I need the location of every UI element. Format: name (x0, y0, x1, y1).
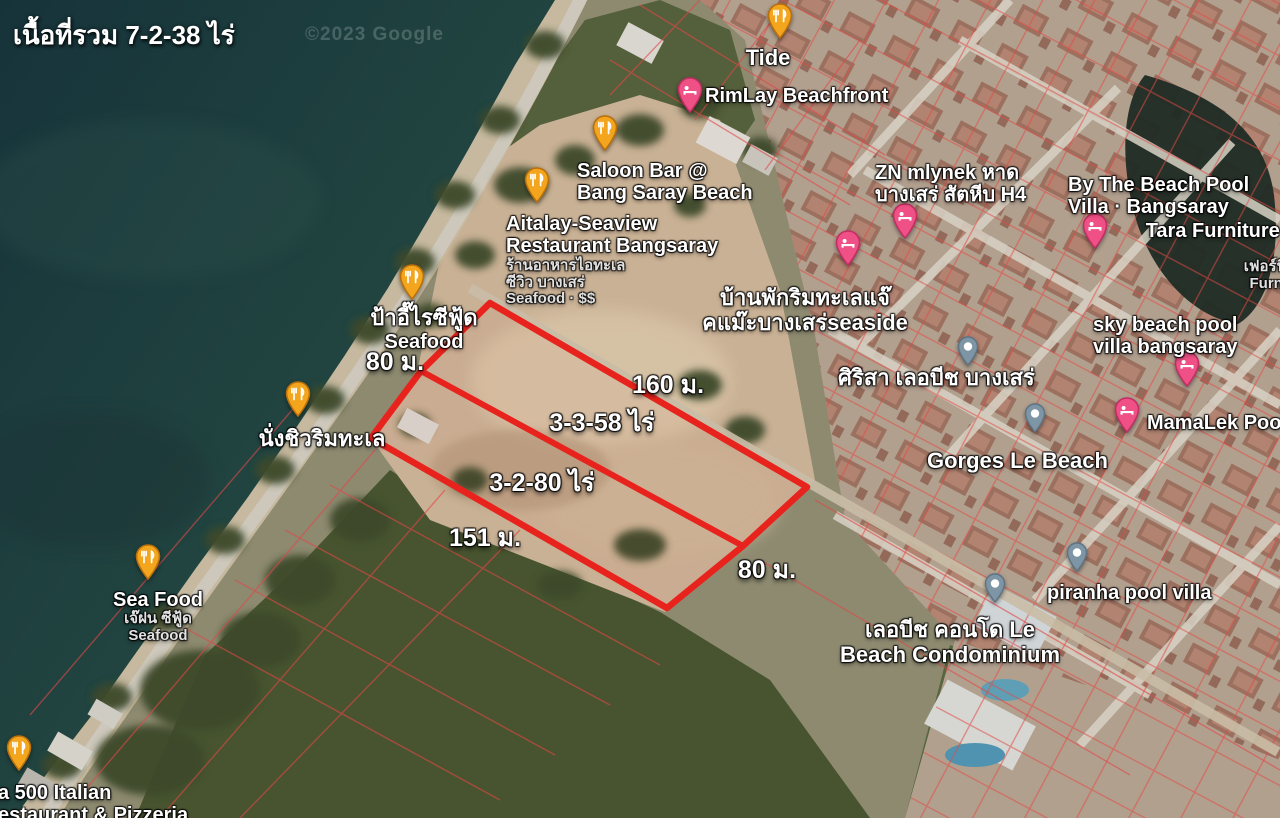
sea-food-je-fon-label-line: Sea Food (113, 589, 203, 611)
aitalay-seaview-label: Aitalay-SeaviewRestaurant Bangsarayร้านอ… (506, 213, 718, 308)
mamalek-pool-villa-label: MamaLek Pool V (1147, 412, 1280, 434)
piranha-pool-villa-pin[interactable] (1066, 542, 1088, 577)
italian-500-pin[interactable] (6, 735, 32, 776)
nang-chill-rim-talay-label: นั่งชิวริมทะเล (259, 427, 386, 452)
pa-ee-rai-seafood-label-line: ป้าอี๊ไรซีฟู้ด (370, 306, 477, 331)
hotel-pin-icon (677, 77, 703, 113)
dim-left-80m: 80 ม. (366, 342, 424, 382)
hotel-pin-icon (835, 230, 861, 266)
sirisa-le-beach-label-line: ศิริสา เลอบีช บางเสร่ (838, 366, 1035, 391)
saloon-bar-label: Saloon Bar @Bang Saray Beach (577, 160, 753, 205)
tara-furniture-label-line: บ (1146, 242, 1280, 259)
zn-mlynek-pin[interactable] (892, 203, 918, 244)
rimlay-beachfront-pin[interactable] (677, 77, 703, 118)
le-beach-condominium-label: เลอบีช คอนโด LeBeach Condominium (840, 618, 1060, 667)
mamalek-pool-villa-label-line: MamaLek Pool V (1147, 412, 1280, 434)
italian-500-label-line: estaurant & Pizzeria (0, 804, 188, 818)
sky-beach-pool-villa-label-line: sky beach pool (1093, 314, 1238, 336)
sky-beach-pool-villa-label-line: villa bangsaray (1093, 336, 1238, 358)
tide-label: Tide (746, 46, 791, 71)
area-parcel-1: 3-3-58 ไร่ (549, 403, 654, 443)
rimlay-beachfront-label-line: RimLay Beachfront (705, 85, 888, 107)
aitalay-seaview-label-line: ซีวิว บางเสร่ (506, 275, 718, 292)
restaurant-pin-icon (285, 381, 311, 417)
place-pin-icon (1066, 542, 1088, 572)
gorges-le-beach-pin[interactable] (1024, 403, 1046, 438)
aitalay-seaview-label-line: ร้านอาหารไอทะเล (506, 258, 718, 275)
tara-furniture-label-line: Tara Furniture ( (1146, 220, 1280, 242)
ban-pak-rim-talay-seaside-label-line: คแม๊ะบางเสร่seaside (702, 311, 908, 336)
gorges-le-beach-label-line: Gorges Le Beach (927, 449, 1108, 474)
sea-food-je-fon-label-line: Seafood (113, 628, 203, 645)
restaurant-pin-icon (524, 167, 550, 203)
rimlay-beachfront-label: RimLay Beachfront (705, 85, 888, 107)
zn-mlynek-label: ZN mlynek หาดบางเสร่ สัตหีบ H4 (875, 162, 1026, 207)
hotel-pin-icon (1114, 397, 1140, 433)
saloon-bar-label-line: Bang Saray Beach (577, 182, 753, 204)
tide-pin[interactable] (767, 3, 793, 44)
ban-pak-rim-talay-seaside-label-line: บ้านพักริมทะเลแจ๊ (702, 286, 908, 311)
place-pin-icon (1024, 403, 1046, 433)
hotel-pin-2-pin[interactable] (835, 230, 861, 271)
hotel-pin-icon (892, 203, 918, 239)
satellite-map: 80 ม.160 ม.3-3-58 ไร่3-2-80 ไร่151 ม.80 … (0, 0, 1280, 818)
nang-chill-rim-talay-label-line: นั่งชิวริมทะเล (259, 427, 386, 452)
saloon-bar-pin[interactable] (592, 115, 618, 156)
tara-furniture-label-line: เฟอร์นิเ (1146, 259, 1280, 276)
restaurant-pin-icon (592, 115, 618, 151)
le-beach-condominium-pin[interactable] (984, 573, 1006, 608)
by-the-beach-pool-villa-label-line: By The Beach Pool (1068, 174, 1249, 196)
aitalay-seaview-label-line: Restaurant Bangsaray (506, 235, 718, 257)
tara-furniture-label-line: Furnit (1146, 276, 1280, 293)
place-pin-icon (957, 336, 979, 366)
italian-500-label: a 500 Italianestaurant & Pizzeria (0, 782, 188, 818)
annotation-layer: 80 ม.160 ม.3-3-58 ไร่3-2-80 ไร่151 ม.80 … (0, 0, 1280, 818)
area-parcel-2: 3-2-80 ไร่ (489, 463, 594, 503)
tide-label-line: Tide (746, 46, 791, 71)
by-the-beach-pool-villa-pin[interactable] (1082, 213, 1108, 254)
gorges-le-beach-label: Gorges Le Beach (927, 449, 1108, 474)
total-area-title: เนื้อที่รวม 7-2-38 ไร่ (13, 15, 235, 56)
sirisa-le-beach-label: ศิริสา เลอบีช บางเสร่ (838, 366, 1035, 391)
restaurant-pin-icon (767, 3, 793, 39)
piranha-pool-villa-label: piranha pool villa (1047, 582, 1211, 604)
aitalay-seaview-label-line: Aitalay-Seaview (506, 213, 718, 235)
dim-right-80m: 80 ม. (738, 550, 796, 590)
restaurant-pin-icon (135, 544, 161, 580)
tara-furniture-label: Tara Furniture (บเฟอร์นิเFurnit (1146, 220, 1280, 293)
by-the-beach-pool-villa-label: By The Beach PoolVilla · Bangsaray (1068, 174, 1249, 219)
sky-beach-pool-villa-label: sky beach poolvilla bangsaray (1093, 314, 1238, 359)
aitalay-seaview-pin[interactable] (524, 167, 550, 208)
place-pin-icon (984, 573, 1006, 603)
sea-food-je-fon-label: Sea Foodเจ๊ฝน ซีฟู้ดSeafood (113, 589, 203, 645)
sea-food-je-fon-label-line: เจ๊ฝน ซีฟู้ด (113, 611, 203, 628)
zn-mlynek-label-line: บางเสร่ สัตหีบ H4 (875, 184, 1026, 206)
dim-bottom-151m: 151 ม. (449, 518, 521, 558)
ban-pak-rim-talay-seaside-label: บ้านพักริมทะเลแจ๊คแม๊ะบางเสร่seaside (702, 286, 908, 335)
le-beach-condominium-label-line: เลอบีช คอนโด Le (840, 618, 1060, 643)
le-beach-condominium-label-line: Beach Condominium (840, 643, 1060, 668)
saloon-bar-label-line: Saloon Bar @ (577, 160, 753, 182)
restaurant-pin-icon (6, 735, 32, 771)
italian-500-label-line: a 500 Italian (0, 782, 188, 804)
dim-top-160m: 160 ม. (632, 365, 704, 405)
aitalay-seaview-label-line: Seafood · $$ (506, 291, 718, 308)
sea-food-je-fon-pin[interactable] (135, 544, 161, 585)
piranha-pool-villa-label-line: piranha pool villa (1047, 582, 1211, 604)
restaurant-pin-icon (399, 264, 425, 300)
mamalek-pool-villa-pin[interactable] (1114, 397, 1140, 438)
by-the-beach-pool-villa-label-line: Villa · Bangsaray (1068, 196, 1249, 218)
pa-ee-rai-seafood-pin[interactable] (399, 264, 425, 305)
zn-mlynek-label-line: ZN mlynek หาด (875, 162, 1026, 184)
nang-chill-rim-talay-pin[interactable] (285, 381, 311, 422)
